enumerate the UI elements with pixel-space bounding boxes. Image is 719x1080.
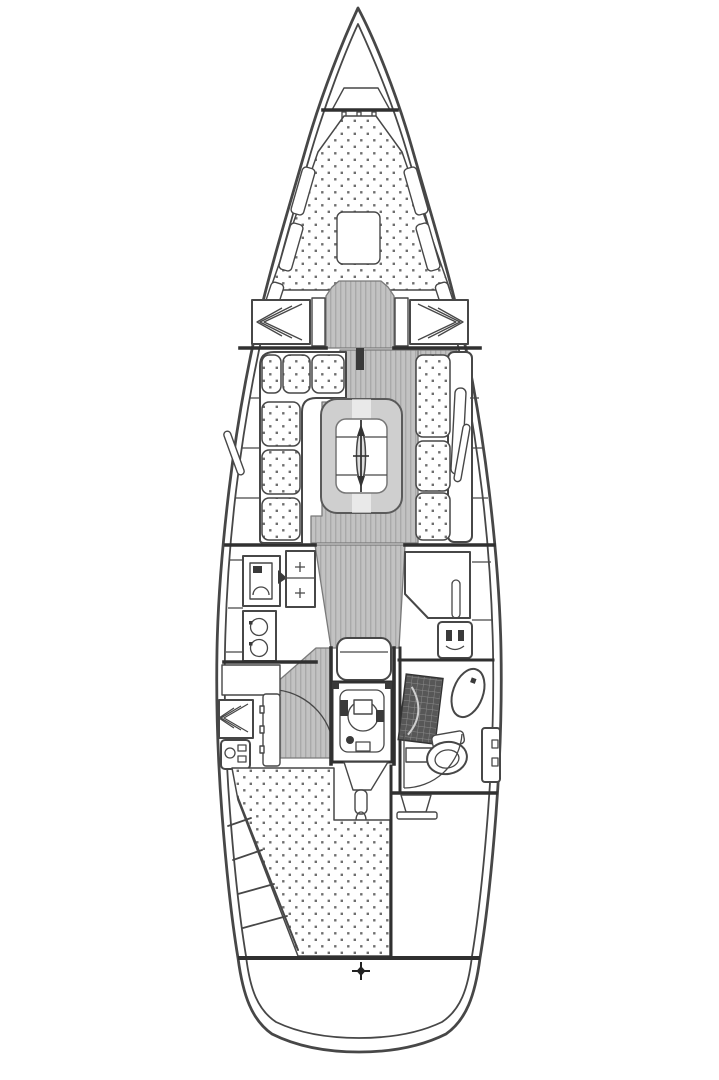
- galley-stove-icon: [243, 556, 287, 606]
- aft-cabin-cabinet-icon: [221, 740, 250, 769]
- aft-hanging-locker: [219, 700, 253, 738]
- head-cabinet-icon: [482, 728, 500, 782]
- nav-seat-icon: [438, 622, 472, 658]
- galley-sink-icon: [243, 611, 276, 661]
- aft-cabin-locker-door: [260, 694, 280, 766]
- yacht-floor-plan: [0, 0, 719, 1080]
- shower-grate-icon: [398, 674, 443, 744]
- saloon-table: [321, 399, 402, 513]
- yacht-floor-plan-canvas: [0, 0, 719, 1080]
- forward-cabin-door-leaf: [356, 348, 364, 370]
- galley-worktop-icon: [286, 551, 315, 607]
